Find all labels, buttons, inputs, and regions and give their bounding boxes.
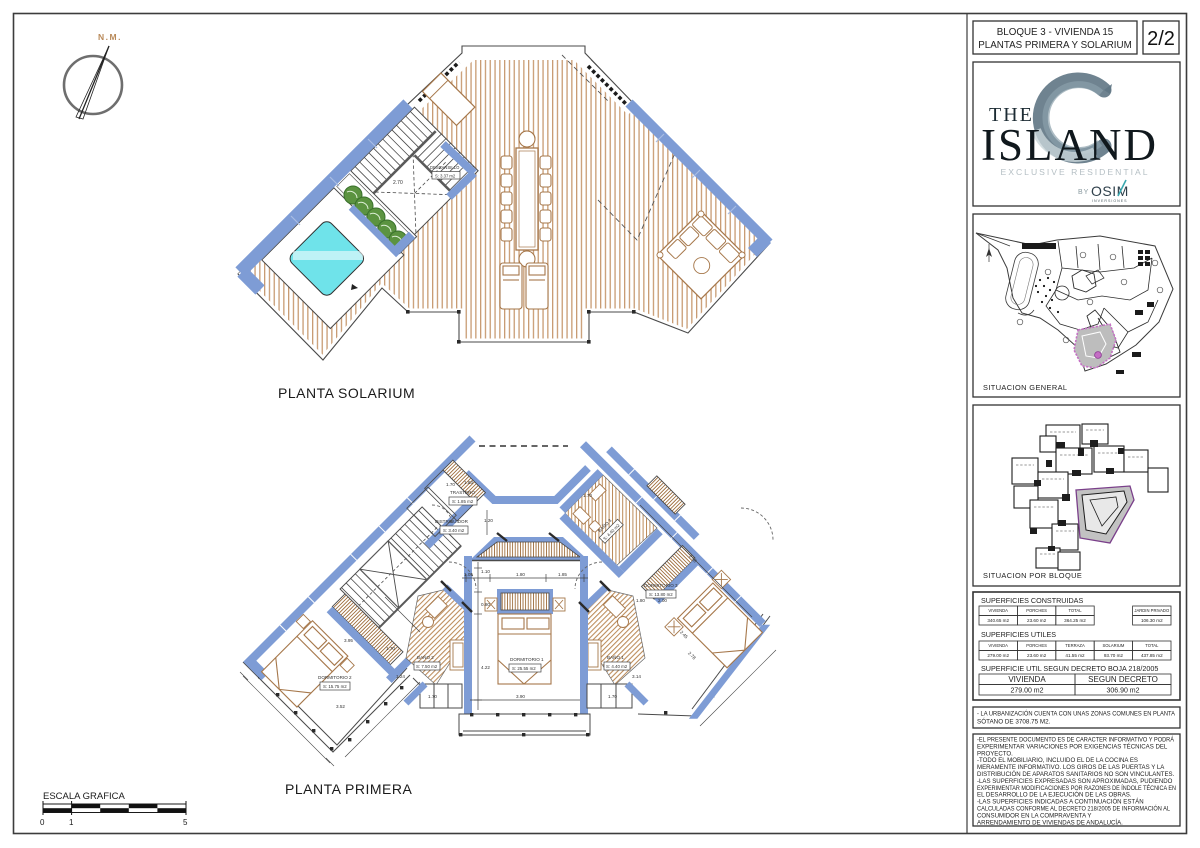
svg-text:2/2: 2/2 [1147, 28, 1175, 50]
svg-text:1.70: 1.70 [428, 694, 437, 699]
svg-text:TERRAZA: TERRAZA [1065, 643, 1085, 648]
svg-text:3.52: 3.52 [336, 704, 345, 709]
svg-text:2.70: 2.70 [393, 180, 403, 186]
svg-text:N.M.: N.M. [98, 32, 122, 42]
svg-text:SEGUN DECRETO: SEGUN DECRETO [1088, 675, 1158, 684]
svg-text:PLANTAS PRIMERA Y SOLARIUM: PLANTAS PRIMERA Y SOLARIUM [978, 40, 1132, 51]
svg-text:S: 4.40 m2: S: 4.40 m2 [606, 664, 628, 669]
svg-text:306.90 m2: 306.90 m2 [1106, 687, 1139, 694]
svg-text:23.60 m2: 23.60 m2 [1027, 618, 1047, 623]
svg-text:PORCHES: PORCHES [1026, 643, 1047, 648]
svg-text:BAÑO 2: BAÑO 2 [417, 654, 434, 660]
svg-text:106.30 m2: 106.30 m2 [1141, 618, 1163, 623]
svg-text:S: 3.40 m2: S: 3.40 m2 [443, 528, 465, 533]
svg-text:EXCLUSIVE RESIDENTIAL: EXCLUSIVE RESIDENTIAL [1001, 167, 1150, 177]
svg-text:INVERSIONES: INVERSIONES [1092, 199, 1128, 203]
svg-text:JARDIN PRIVADO: JARDIN PRIVADO [1134, 608, 1170, 613]
svg-text:1.10: 1.10 [481, 569, 490, 574]
svg-text:1.80: 1.80 [636, 598, 645, 603]
svg-text:SUPERFICIES CONSTRUIDAS: SUPERFICIES CONSTRUIDAS [981, 596, 1083, 605]
svg-text:1.70: 1.70 [386, 646, 395, 651]
svg-text:VIVIENDA: VIVIENDA [1008, 675, 1046, 684]
svg-text:364.25 m2: 364.25 m2 [1064, 618, 1086, 623]
svg-text:1: 1 [69, 818, 74, 827]
svg-text:ARRENDAMIENTO DE VIVIENDAS DE: ARRENDAMIENTO DE VIVIENDAS DE ANDALUCÍA. [977, 819, 1123, 826]
svg-text:S: 25.55 m2: S: 25.55 m2 [512, 666, 536, 671]
svg-text:DORMITORIO 1: DORMITORIO 1 [510, 657, 544, 662]
svg-text:- LA URBANIZACIÓN CUENTA CON U: - LA URBANIZACIÓN CUENTA CON UNAS ZONAS … [977, 709, 1176, 718]
svg-text:4.22: 4.22 [481, 665, 490, 670]
svg-text:23.60 m2: 23.60 m2 [1027, 653, 1047, 658]
svg-text:VIVIENDA: VIVIENDA [988, 608, 1008, 613]
svg-text:DORMITORIO 3: DORMITORIO 3 [644, 583, 678, 588]
svg-text:SÓTANO DE 3708.75 M2.: SÓTANO DE 3708.75 M2. [977, 717, 1051, 726]
svg-text:DESCANSILLO: DESCANSILLO [430, 165, 460, 170]
svg-text:SUPERFICIE UTIL SEGUN DECRETO: SUPERFICIE UTIL SEGUN DECRETO BOJA 218/2… [981, 664, 1158, 673]
svg-text:S: 1.85 m2: S: 1.85 m2 [452, 499, 474, 504]
svg-text:S: 15.75 m2: S: 15.75 m2 [323, 684, 347, 689]
svg-text:2.00: 2.00 [658, 598, 667, 603]
svg-text:279.00 m2: 279.00 m2 [987, 653, 1009, 658]
svg-text:PORCHES: PORCHES [1026, 608, 1047, 613]
svg-text:437.85 m2: 437.85 m2 [1141, 653, 1163, 658]
svg-text:PLANTA SOLARIUM: PLANTA SOLARIUM [278, 385, 415, 401]
svg-text:1.70: 1.70 [446, 482, 455, 487]
svg-text:41.55 m2: 41.55 m2 [1065, 653, 1085, 658]
svg-text:SOLARIUM: SOLARIUM [1102, 643, 1124, 648]
svg-text:S: 7.50 m2: S: 7.50 m2 [416, 664, 438, 669]
svg-text:BY: BY [1078, 189, 1089, 196]
svg-text:BAÑO 1: BAÑO 1 [607, 654, 624, 660]
svg-text:ESCALA GRAFICA: ESCALA GRAFICA [43, 791, 125, 802]
svg-text:TRASTERO: TRASTERO [450, 490, 475, 495]
svg-text:5: 5 [183, 818, 188, 827]
svg-text:PLANTA PRIMERA: PLANTA PRIMERA [285, 781, 412, 797]
svg-text:1.05: 1.05 [464, 572, 473, 577]
svg-text:VIVIENDA: VIVIENDA [988, 643, 1008, 648]
svg-text:340.65 m2: 340.65 m2 [987, 618, 1009, 623]
svg-text:1.20: 1.20 [484, 518, 493, 523]
svg-text:DISTRIBUIDOR: DISTRIBUIDOR [435, 519, 469, 524]
svg-text:TOTAL: TOTAL [1145, 643, 1159, 648]
svg-text:TOTAL: TOTAL [1068, 608, 1082, 613]
svg-text:SUPERFICIES UTILES: SUPERFICIES UTILES [981, 630, 1056, 639]
svg-text:2.78: 2.78 [687, 651, 697, 661]
svg-text:0: 0 [40, 818, 45, 827]
svg-text:1.24: 1.24 [396, 674, 405, 679]
svg-text:1.70: 1.70 [583, 493, 592, 498]
svg-text:2.45: 2.45 [679, 630, 689, 640]
svg-text:SITUACION GENERAL: SITUACION GENERAL [983, 383, 1067, 392]
svg-text:93.70 m2: 93.70 m2 [1104, 653, 1124, 658]
svg-text:S: 3.37 m2: S: 3.37 m2 [435, 173, 456, 178]
svg-text:S: 13.80 m2: S: 13.80 m2 [649, 592, 673, 597]
svg-text:3.14: 3.14 [632, 674, 641, 679]
svg-text:1.83: 1.83 [464, 480, 473, 485]
svg-text:DORMITORIO 2: DORMITORIO 2 [318, 675, 352, 680]
svg-text:SITUACION POR BLOQUE: SITUACION POR BLOQUE [983, 571, 1082, 580]
svg-text:3.90: 3.90 [516, 694, 525, 699]
svg-text:1.80: 1.80 [516, 572, 525, 577]
svg-text:0.80: 0.80 [481, 602, 490, 607]
svg-text:279.00 m2: 279.00 m2 [1010, 687, 1043, 694]
svg-text:1.85: 1.85 [558, 572, 567, 577]
svg-text:ISLAND: ISLAND [981, 120, 1158, 170]
svg-text:1.70: 1.70 [608, 694, 617, 699]
svg-text:BLOQUE 3 - VIVIENDA 15: BLOQUE 3 - VIVIENDA 15 [997, 27, 1114, 38]
svg-text:3.95: 3.95 [344, 638, 353, 643]
